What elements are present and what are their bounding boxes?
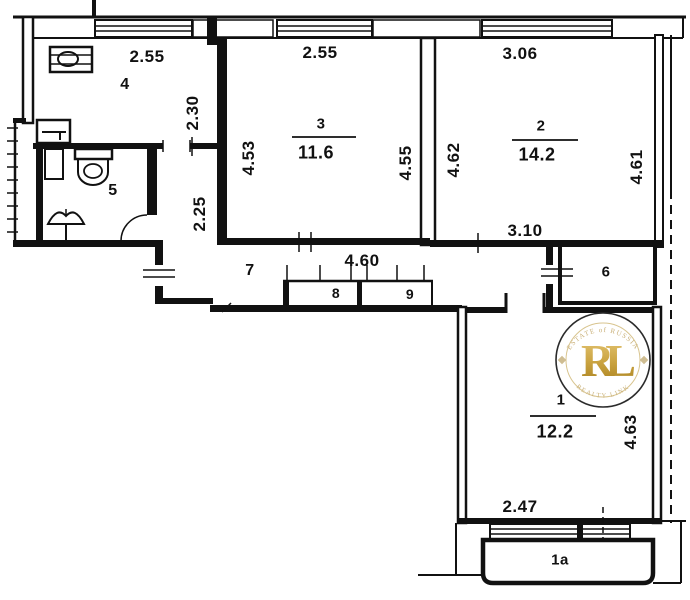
dim-room1-bottom: 2.47 bbox=[502, 497, 537, 517]
washer-icon bbox=[45, 149, 63, 179]
watermark-logo: ESTATE of RUSSIA REALTY LINK RL bbox=[556, 313, 650, 407]
room-number-corridor: 7 bbox=[245, 262, 254, 280]
dim-kitchen-right: 2.30 bbox=[183, 95, 203, 130]
room-number-1: 1 bbox=[557, 392, 566, 409]
room-number-closet9: 9 bbox=[406, 286, 414, 302]
area-room3: 11.6 bbox=[298, 143, 334, 164]
plan-linework: ESTATE of RUSSIA REALTY LINK RL bbox=[0, 0, 690, 600]
dim-room2-top: 3.06 bbox=[502, 44, 537, 64]
dim-corridor-strip: 2.25 bbox=[190, 196, 210, 231]
area-room2: 14.2 bbox=[518, 145, 555, 166]
dim-room1-right: 4.63 bbox=[621, 414, 641, 449]
dim-room3-left: 4.53 bbox=[239, 140, 259, 175]
window-room3 bbox=[277, 20, 372, 37]
window-kitchen bbox=[95, 20, 192, 37]
wall-pier bbox=[373, 20, 480, 37]
room-number-2: 2 bbox=[537, 118, 546, 135]
dim-room2-right: 4.61 bbox=[627, 149, 647, 184]
stove-icon bbox=[50, 47, 92, 72]
bath-door-arc bbox=[121, 215, 147, 241]
dim-room3-top: 2.55 bbox=[302, 43, 337, 63]
room-number-6: 6 bbox=[602, 264, 611, 281]
washbasin-icon bbox=[48, 209, 84, 240]
area-room1: 12.2 bbox=[536, 422, 573, 443]
room-number-kitchen: 4 bbox=[120, 76, 129, 94]
room-number-bath: 5 bbox=[108, 182, 117, 200]
kitchen-sink-icon bbox=[37, 120, 70, 143]
room-number-balcony: 1a bbox=[551, 552, 569, 569]
wall-pier bbox=[193, 20, 273, 37]
watermark-monogram: RL bbox=[581, 335, 634, 386]
exterior-left-wall bbox=[7, 17, 33, 243]
exterior-top-wall bbox=[13, 0, 686, 38]
dim-room2-left: 4.62 bbox=[444, 142, 464, 177]
dim-room3-right: 4.55 bbox=[396, 145, 416, 180]
window-room2 bbox=[482, 20, 612, 37]
dim-corridor-width: 4.60 bbox=[344, 251, 379, 271]
hatch-ticks bbox=[7, 128, 18, 232]
room-number-closet8: 8 bbox=[332, 285, 340, 301]
toilet-icon bbox=[75, 149, 112, 185]
dim-kitchen-top: 2.55 bbox=[129, 47, 164, 67]
dim-room2-bottom: 3.10 bbox=[507, 221, 542, 241]
room-number-3: 3 bbox=[317, 116, 326, 133]
floor-plan: ESTATE of RUSSIA REALTY LINK RL 2.55 4 2… bbox=[0, 0, 690, 600]
wall-stub bbox=[92, 0, 96, 18]
